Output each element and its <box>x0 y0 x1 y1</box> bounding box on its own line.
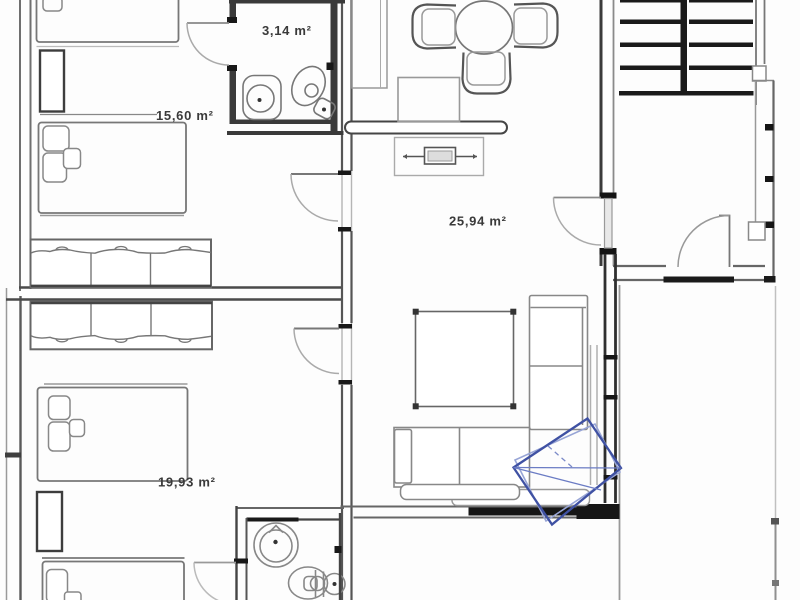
svg-text:25,94 m²: 25,94 m² <box>449 214 507 229</box>
svg-text:19,93 m²: 19,93 m² <box>158 475 216 490</box>
svg-text:3,14 m²: 3,14 m² <box>262 23 312 38</box>
svg-text:15,60 m²: 15,60 m² <box>156 108 214 123</box>
